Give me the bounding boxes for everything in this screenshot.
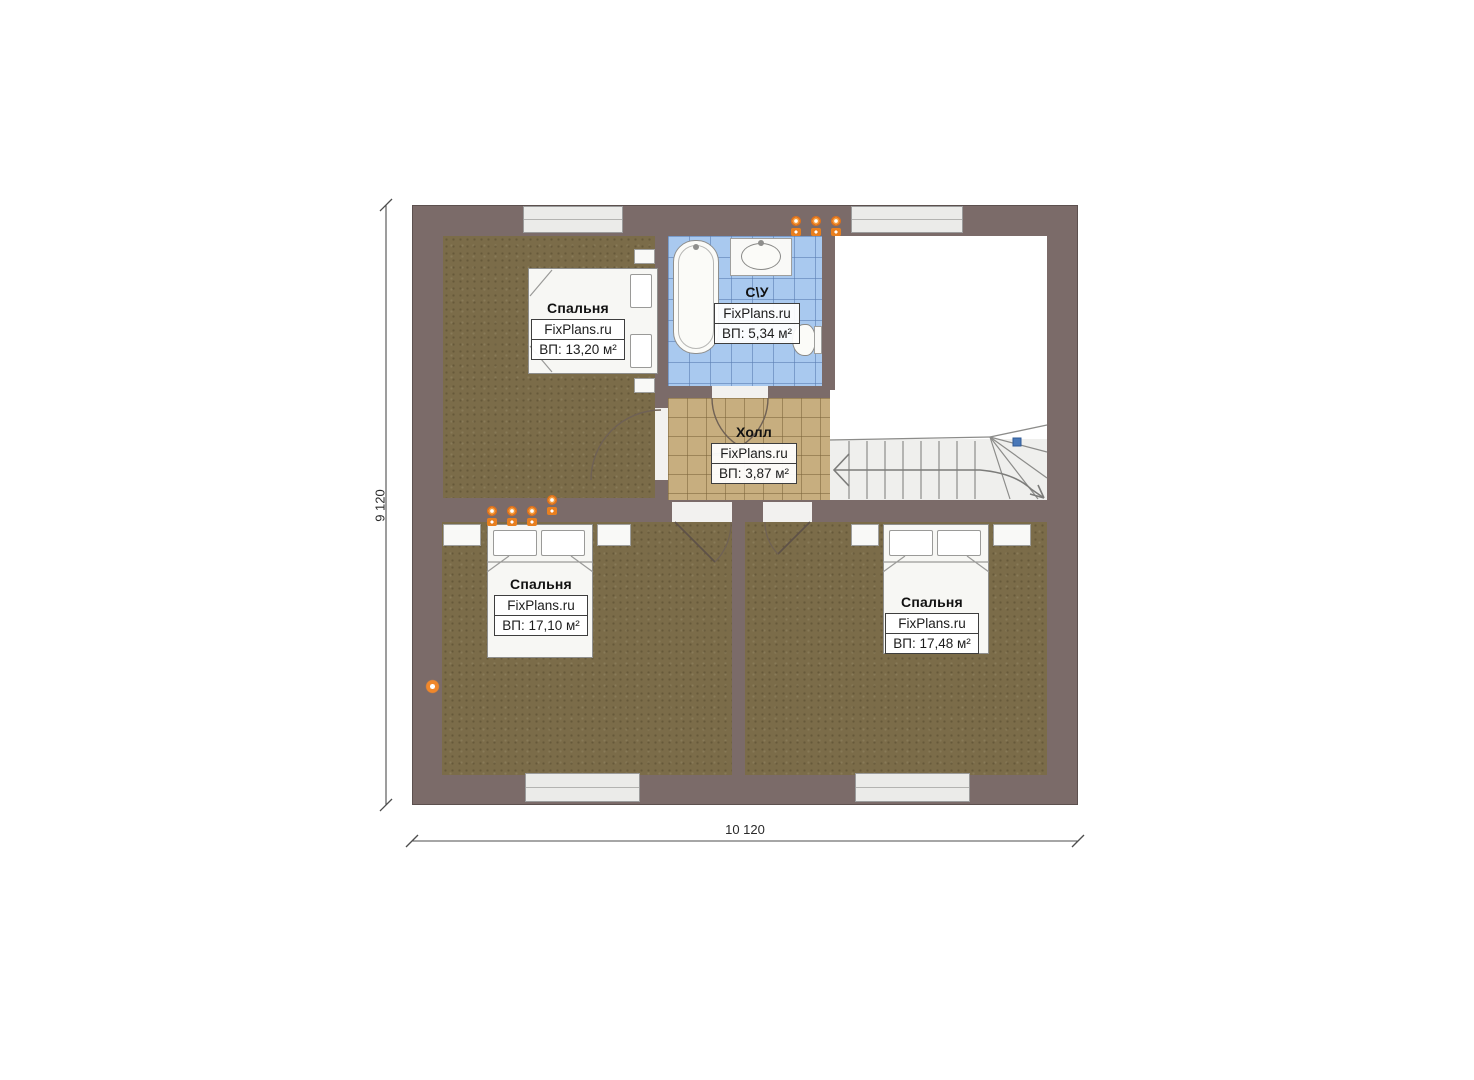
window-top-right xyxy=(851,206,963,233)
floor-plan-canvas: Спальня FixPlans.ru ВП: 13,20 м² С\У Fix… xyxy=(0,0,1474,1080)
room-brand: FixPlans.ru xyxy=(715,304,799,323)
toilet-tank xyxy=(814,326,822,354)
bed-bottom-left-pillow xyxy=(493,530,537,556)
lamp-icon xyxy=(486,506,498,527)
door-opening-bedroom-top-left xyxy=(655,408,668,480)
room-area: ВП: 3,87 м² xyxy=(712,463,796,483)
room-name: Спальня xyxy=(528,300,628,316)
nightstand xyxy=(993,524,1031,546)
window-bottom-left xyxy=(525,773,640,802)
room-name: Спальня xyxy=(490,576,592,592)
nightstand xyxy=(851,524,879,546)
wall-lamp-icon xyxy=(425,679,440,694)
room-name: Спальня xyxy=(880,594,984,610)
bathtub-inner xyxy=(678,245,714,349)
dresser xyxy=(443,524,481,546)
room-label-bedroom-bottom-left: Спальня FixPlans.ru ВП: 17,10 м² xyxy=(490,576,592,636)
stairs-zone xyxy=(830,439,1047,500)
lamp-icon xyxy=(546,495,558,516)
nightstand xyxy=(597,524,631,546)
room-area: ВП: 17,48 м² xyxy=(886,633,978,653)
room-brand: FixPlans.ru xyxy=(712,444,796,463)
nightstand xyxy=(634,249,655,264)
lamp-icon xyxy=(526,506,538,527)
door-opening-bedroom-bottom-left xyxy=(672,502,732,522)
sink-bowl xyxy=(741,243,781,270)
door-opening-bathroom xyxy=(712,386,768,398)
room-label-bedroom-top-left: Спальня FixPlans.ru ВП: 13,20 м² xyxy=(528,300,628,360)
nightstand xyxy=(634,378,655,393)
window-bottom-right xyxy=(855,773,970,802)
lamp-icon xyxy=(506,506,518,527)
bed-bottom-left-pillow xyxy=(541,530,585,556)
lamp-icon xyxy=(830,216,842,237)
room-info-box: FixPlans.ru ВП: 3,87 м² xyxy=(711,443,797,484)
bed-top-left-pillow xyxy=(630,274,652,308)
room-label-bathroom: С\У FixPlans.ru ВП: 5,34 м² xyxy=(711,284,803,344)
door-opening-bedroom-bottom-right xyxy=(763,502,812,522)
dimension-horizontal: 10 120 xyxy=(700,822,790,837)
room-label-bedroom-bottom-right: Спальня FixPlans.ru ВП: 17,48 м² xyxy=(880,594,984,654)
room-info-box: FixPlans.ru ВП: 17,10 м² xyxy=(494,595,588,636)
lamp-icon xyxy=(810,216,822,237)
bed-top-left-pillow xyxy=(630,334,652,368)
room-brand: FixPlans.ru xyxy=(495,596,587,615)
room-area: ВП: 17,10 м² xyxy=(495,615,587,635)
room-info-box: FixPlans.ru ВП: 17,48 м² xyxy=(885,613,979,654)
room-info-box: FixPlans.ru ВП: 5,34 м² xyxy=(714,303,800,344)
room-label-hall: Холл FixPlans.ru ВП: 3,87 м² xyxy=(708,424,800,484)
room-name: С\У xyxy=(711,284,803,300)
room-brand: FixPlans.ru xyxy=(886,614,978,633)
dimension-vertical: 9 120 xyxy=(373,478,388,534)
room-brand: FixPlans.ru xyxy=(532,320,624,339)
window-top-left xyxy=(523,206,623,233)
room-info-box: FixPlans.ru ВП: 13,20 м² xyxy=(531,319,625,360)
room-name: Холл xyxy=(708,424,800,440)
bed-bottom-right-pillow xyxy=(889,530,933,556)
room-area: ВП: 13,20 м² xyxy=(532,339,624,359)
lamp-icon xyxy=(790,216,802,237)
bathroom-stair-wall xyxy=(822,236,835,390)
room-area: ВП: 5,34 м² xyxy=(715,323,799,343)
bed-bottom-right-pillow xyxy=(937,530,981,556)
